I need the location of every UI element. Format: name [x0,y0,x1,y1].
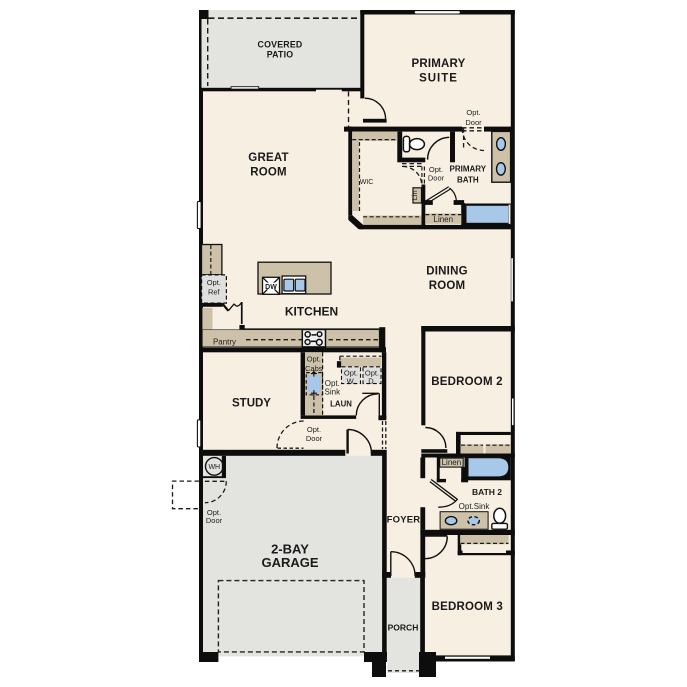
svg-text:Sink: Sink [325,388,342,397]
svg-text:Linen: Linen [442,458,462,467]
svg-text:W.: W. [347,377,356,386]
svg-text:COVERED: COVERED [258,39,303,49]
svg-text:DINING: DINING [426,266,467,278]
svg-text:FOYER: FOYER [387,515,421,526]
svg-text:BATH 2: BATH 2 [472,487,502,497]
svg-text:Pantry: Pantry [213,338,236,347]
svg-text:WH: WH [208,464,220,471]
svg-text:Opt.: Opt. [307,355,321,364]
svg-text:KITCHEN: KITCHEN [285,305,338,319]
svg-text:STUDY: STUDY [232,398,271,410]
svg-text:PORCH: PORCH [388,623,419,633]
svg-text:Door: Door [465,118,482,127]
svg-text:Opt.: Opt. [207,278,221,287]
svg-text:PRIMARY: PRIMARY [450,165,487,174]
svg-text:Door: Door [206,516,223,525]
svg-text:Lin: Lin [410,190,419,200]
svg-text:WIC: WIC [360,179,374,186]
svg-text:Ref: Ref [208,288,221,297]
svg-text:DW: DW [265,284,277,291]
svg-text:BATH: BATH [457,176,479,185]
svg-text:Opt.Sink: Opt.Sink [459,502,491,511]
svg-text:BEDROOM 3: BEDROOM 3 [432,601,503,613]
svg-text:Opt.: Opt. [466,108,480,117]
svg-text:Linen: Linen [434,215,454,224]
svg-text:BEDROOM 2: BEDROOM 2 [431,376,502,388]
svg-text:Cabs: Cabs [305,364,323,373]
svg-text:Opt.: Opt. [307,425,321,434]
svg-text:PRIMARY: PRIMARY [411,58,465,70]
svg-text:D.: D. [368,377,376,386]
svg-text:GARAGE: GARAGE [261,555,318,570]
svg-text:Door: Door [428,174,445,183]
svg-text:LAUN: LAUN [330,400,352,409]
svg-text:Door: Door [306,434,323,443]
svg-text:GREAT: GREAT [248,152,288,164]
svg-text:SUITE: SUITE [419,73,458,85]
svg-text:ROOM: ROOM [250,167,287,179]
svg-text:PATIO: PATIO [267,50,294,60]
svg-text:ROOM: ROOM [429,280,466,292]
